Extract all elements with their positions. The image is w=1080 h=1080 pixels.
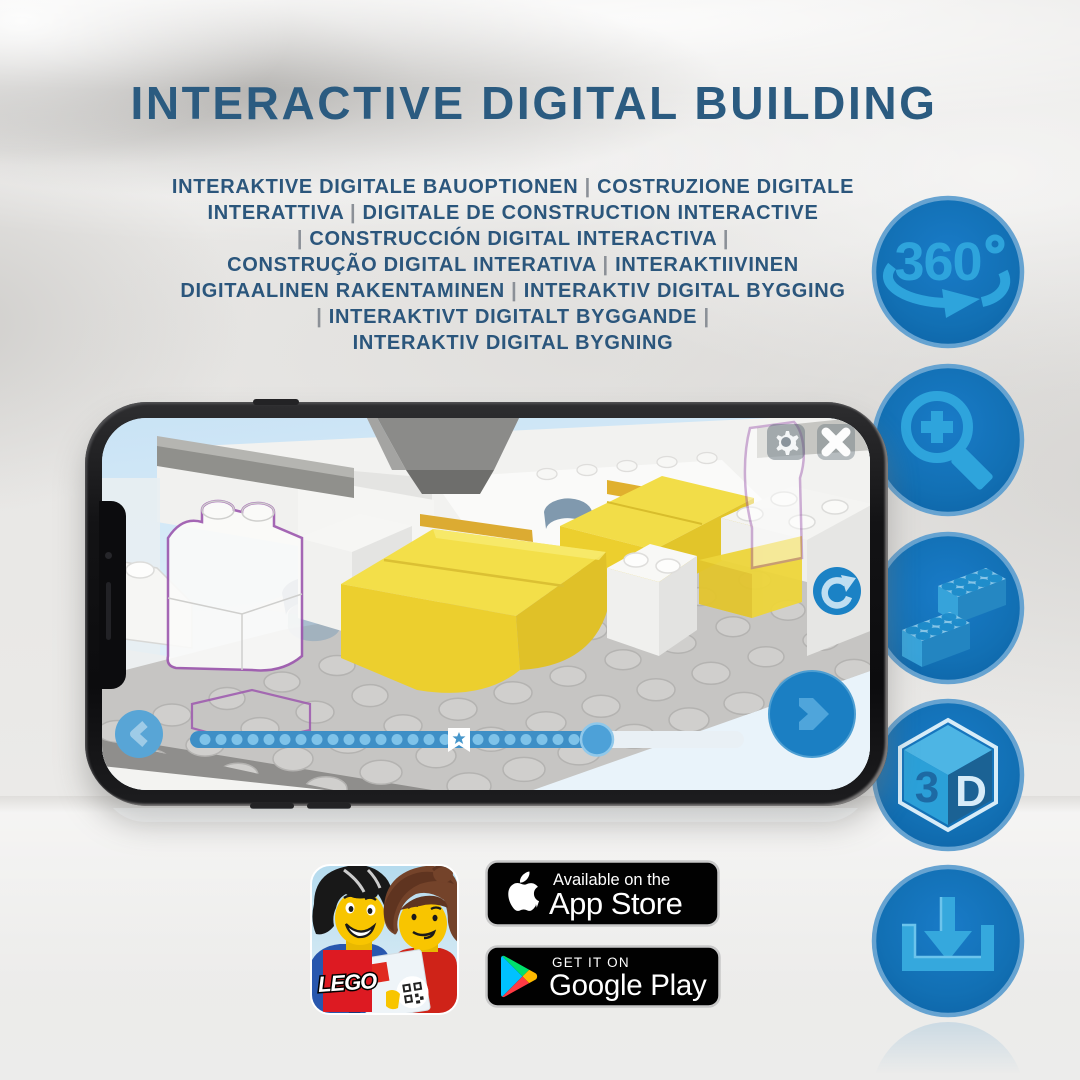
svg-text:D: D	[955, 767, 987, 816]
svg-text:App Store: App Store	[549, 886, 682, 921]
svg-text:GET IT ON: GET IT ON	[552, 955, 630, 970]
svg-text:LEGO: LEGO	[317, 968, 378, 997]
svg-text:3: 3	[915, 763, 939, 812]
svg-text:360: 360	[894, 232, 981, 292]
svg-text:Google Play: Google Play	[549, 969, 707, 1002]
